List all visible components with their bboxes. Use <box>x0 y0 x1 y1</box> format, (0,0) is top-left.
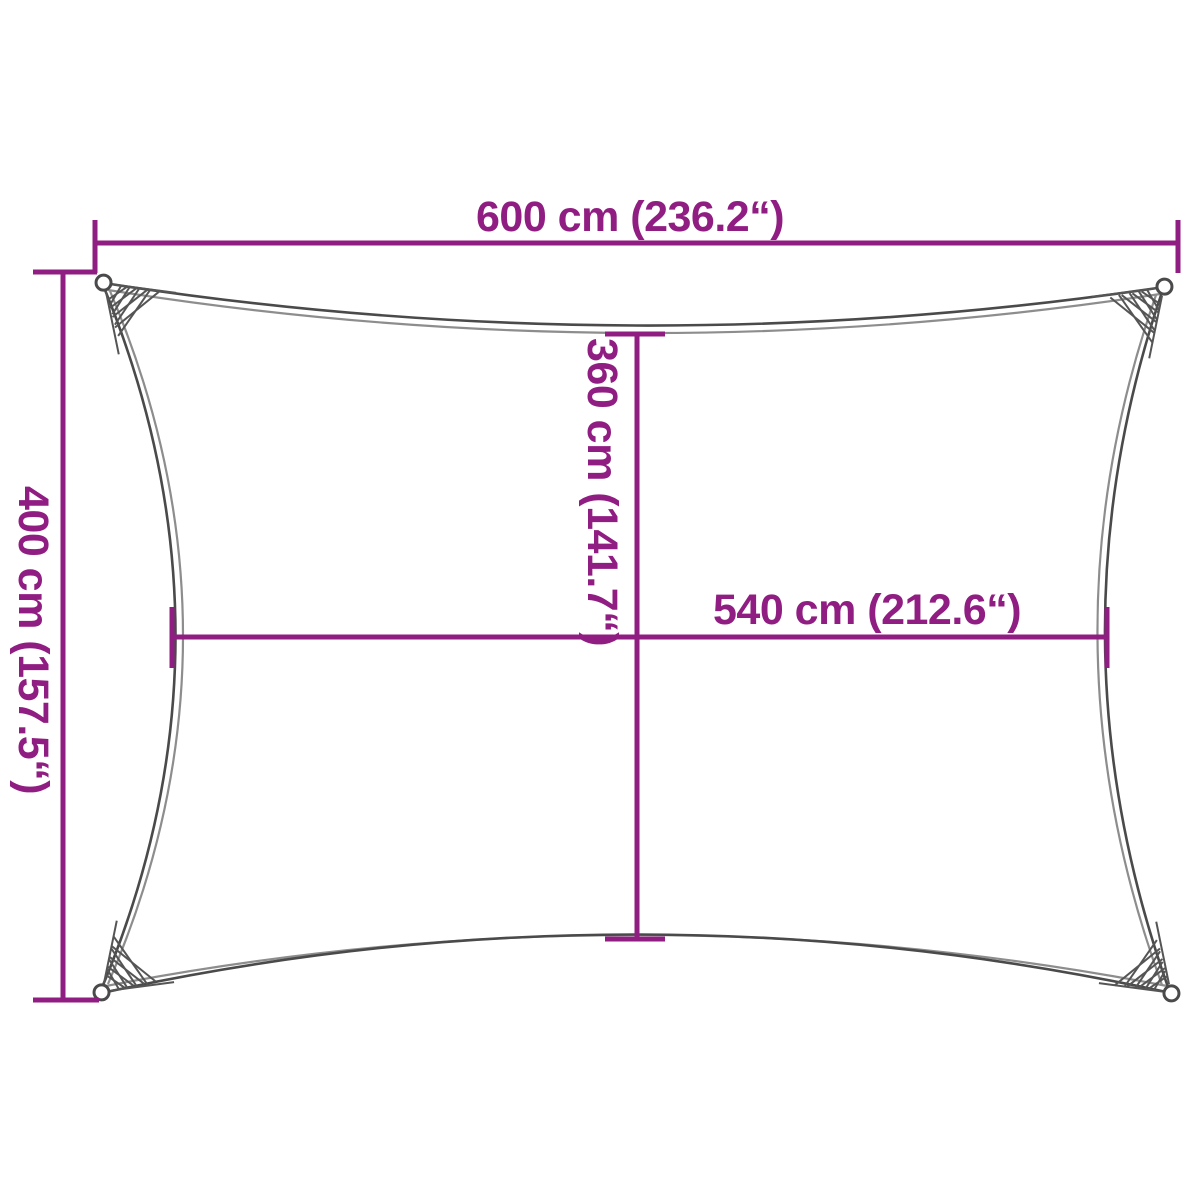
sail-left-edge <box>101 285 176 990</box>
shade-sail-dimension-diagram: 600 cm (236.2“) 400 cm (157.5“) 360 cm (… <box>0 0 1200 1200</box>
sail-top-edge <box>104 283 1164 326</box>
inner-width-label: 540 cm (212.6“) <box>713 586 1021 634</box>
dimension-top-width: 600 cm (236.2“) <box>95 193 1178 273</box>
dimension-left-height: 400 cm (157.5“) <box>9 272 99 1000</box>
inner-height-label: 360 cm (141.7“) <box>578 338 626 646</box>
sail-bottom-edge-inner <box>106 935 1167 986</box>
left-height-label: 400 cm (157.5“) <box>9 486 57 794</box>
top-width-label: 600 cm (236.2“) <box>476 193 784 241</box>
sail-right-edge <box>1105 289 1169 990</box>
diagram-svg: 600 cm (236.2“) 400 cm (157.5“) 360 cm (… <box>0 0 1200 1200</box>
sail-bottom-edge <box>102 935 1171 994</box>
